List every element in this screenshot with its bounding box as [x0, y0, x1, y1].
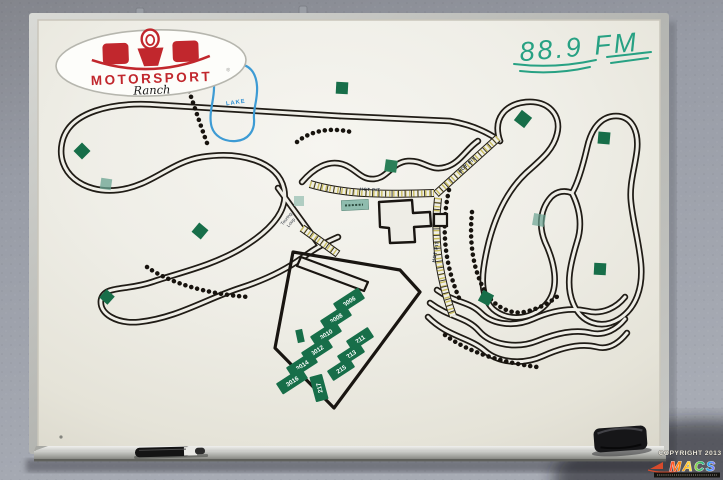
building-outline [434, 214, 447, 226]
frame-screw [59, 435, 62, 438]
magnet [384, 159, 398, 173]
magnet [597, 131, 610, 144]
logo-reg-mark: ® [226, 66, 230, 73]
eraser [590, 425, 652, 458]
logo-subtitle: Ranch [132, 82, 171, 97]
magnet [100, 178, 112, 190]
dry-erase-marker [134, 446, 208, 459]
magnet [594, 263, 607, 276]
copyright-text: COPYRIGHT 2013 [658, 450, 721, 457]
sticker [294, 196, 304, 206]
magnet [532, 213, 546, 227]
watermark-tagline-bar [654, 473, 720, 478]
magnet [336, 82, 349, 95]
hot-pit-label: HOT PIT [360, 186, 381, 192]
whiteboard-photo: 3006 3008 3010 3012 3014 3016 211 213 21… [0, 0, 723, 480]
marker-tray [34, 446, 666, 461]
macs-logo-text: MACS [669, 458, 716, 474]
